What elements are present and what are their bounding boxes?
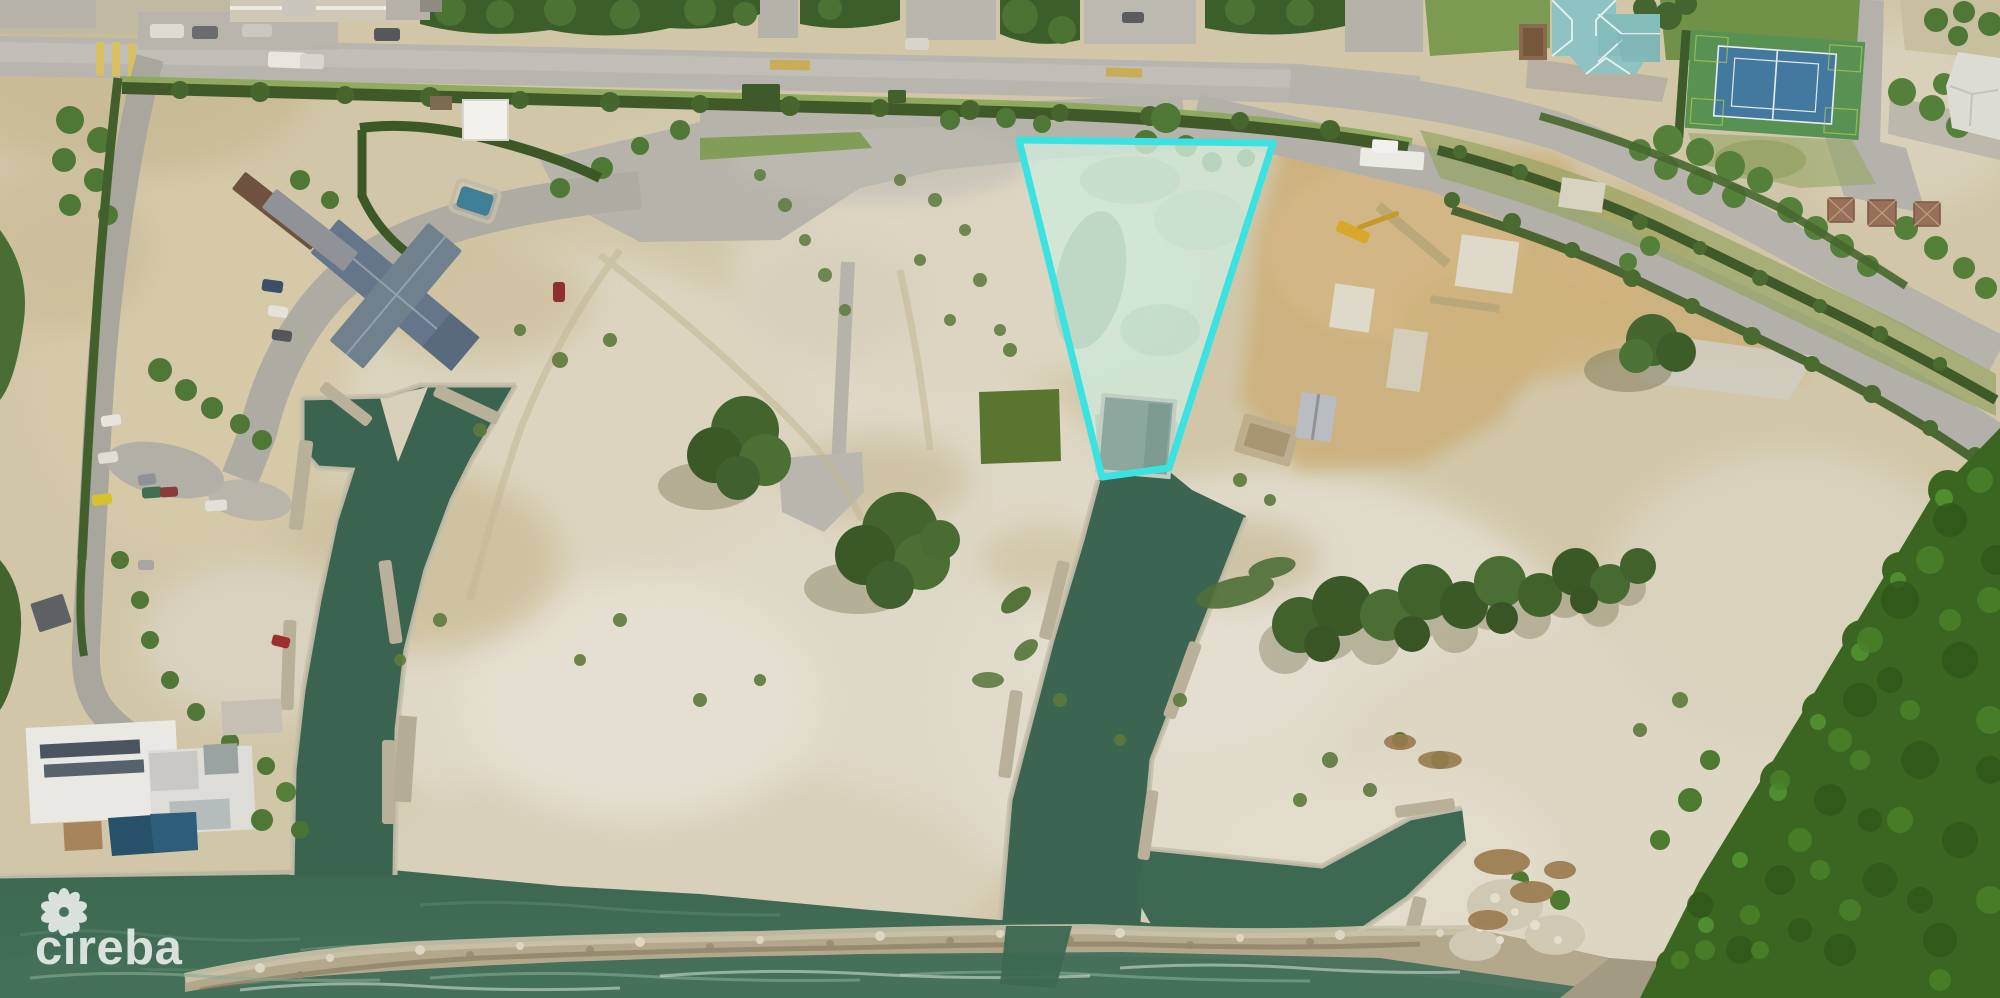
svg-text:cireba: cireba [35, 921, 183, 975]
